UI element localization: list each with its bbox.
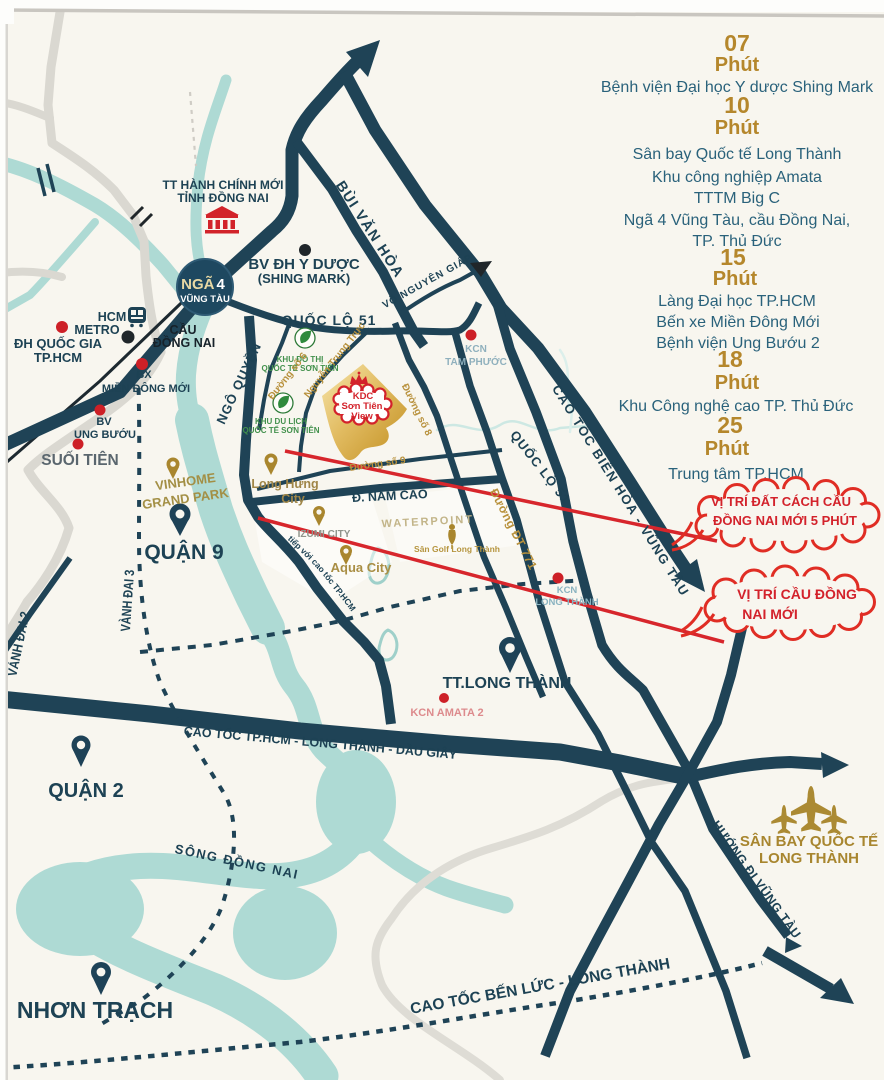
svg-text:KHU DU LỊCH: KHU DU LỊCH [255,417,307,426]
svg-text:TT.LONG THÀNH: TT.LONG THÀNH [443,673,572,692]
svg-text:25: 25 [717,412,743,438]
svg-text:QUỐC TẾ SƠN TIÊN: QUỐC TẾ SƠN TIÊN [242,425,319,435]
svg-text:Phút: Phút [713,268,758,290]
svg-text:SUỐI TIÊN: SUỐI TIÊN [41,451,119,469]
svg-text:TỈNH ĐỒNG NAI: TỈNH ĐỒNG NAI [177,190,268,205]
svg-text:KCN: KCN [465,344,487,355]
svg-text:MIỀN ĐÔNG MỚI: MIỀN ĐÔNG MỚI [102,382,190,395]
svg-text:Khu công nghiệp Amata: Khu công nghiệp Amata [652,169,822,186]
svg-text:ĐH QUỐC GIA: ĐH QUỐC GIA [14,336,103,351]
svg-text:VỊ TRÍ CẦU ĐỒNG: VỊ TRÍ CẦU ĐỒNG [737,585,857,602]
svg-text:Phút: Phút [715,372,760,394]
svg-text:Bến xe Miền Đông Mới: Bến xe Miền Đông Mới [656,314,819,331]
svg-text:TAM PHƯỚC: TAM PHƯỚC [445,355,507,368]
svg-text:ĐỒNG NAI MỚI 5 PHÚT: ĐỒNG NAI MỚI 5 PHÚT [713,513,857,528]
svg-text:18: 18 [717,346,743,372]
svg-text:Long Hưng: Long Hưng [251,477,318,491]
svg-text:TP.HCM: TP.HCM [34,350,82,365]
svg-text:Trung tâm TP.HCM: Trung tâm TP.HCM [668,466,804,483]
svg-text:METRO: METRO [74,323,119,337]
svg-text:15: 15 [720,244,746,270]
svg-text:(SHING MARK): (SHING MARK) [258,271,350,286]
svg-text:NAI MỚI: NAI MỚI [742,605,798,622]
svg-text:KCN AMATA 2: KCN AMATA 2 [410,707,483,719]
svg-text:BX: BX [136,369,152,381]
svg-text:ĐỒNG NAI: ĐỒNG NAI [153,335,216,350]
svg-text:SÂN BAY QUỐC TẾ: SÂN BAY QUỐC TẾ [740,832,878,850]
svg-text:Sân bay Quốc tế Long Thành: Sân bay Quốc tế Long Thành [633,146,842,163]
svg-text:NHƠN TRẠCH: NHƠN TRẠCH [17,997,173,1023]
svg-text:10: 10 [724,92,750,118]
svg-text:TTTM Big C: TTTM Big C [694,190,780,207]
svg-text:HCM: HCM [98,310,126,324]
svg-text:View: View [351,411,373,422]
svg-text:VŨNG TÀU: VŨNG TÀU [180,294,230,305]
svg-text:Ngã 4 Vũng Tàu, cầu Đồng Nai,: Ngã 4 Vũng Tàu, cầu Đồng Nai, [624,212,851,229]
svg-text:CẦU: CẦU [169,322,196,337]
svg-text:KCN: KCN [557,585,578,596]
svg-text:UNG BƯỚU: UNG BƯỚU [74,428,136,441]
svg-text:LONG THÀNH: LONG THÀNH [759,850,859,867]
svg-text:TT HÀNH CHÍNH MỚI: TT HÀNH CHÍNH MỚI [163,177,284,192]
svg-text:City: City [281,492,305,506]
svg-text:QUẬN 9: QUẬN 9 [144,540,223,564]
svg-text:Phút: Phút [715,117,760,139]
svg-text:NGÃ4: NGÃ4 [181,275,225,293]
svg-text:07: 07 [724,30,750,56]
svg-text:Phút: Phút [705,438,750,460]
svg-text:Aqua City: Aqua City [331,560,392,575]
svg-text:BV: BV [96,416,112,428]
svg-text:QUẬN 2: QUẬN 2 [48,778,124,802]
svg-text:VỊ TRÍ ĐẤT CÁCH CẦU: VỊ TRÍ ĐẤT CÁCH CẦU [711,494,851,509]
svg-text:Sân Golf Long Thành: Sân Golf Long Thành [414,544,500,554]
svg-text:Phút: Phút [715,54,760,76]
svg-text:LONG THÀNH: LONG THÀNH [535,597,598,608]
svg-text:Làng Đại học TP.HCM: Làng Đại học TP.HCM [658,293,816,310]
svg-text:IZUMI CITY: IZUMI CITY [298,529,351,540]
